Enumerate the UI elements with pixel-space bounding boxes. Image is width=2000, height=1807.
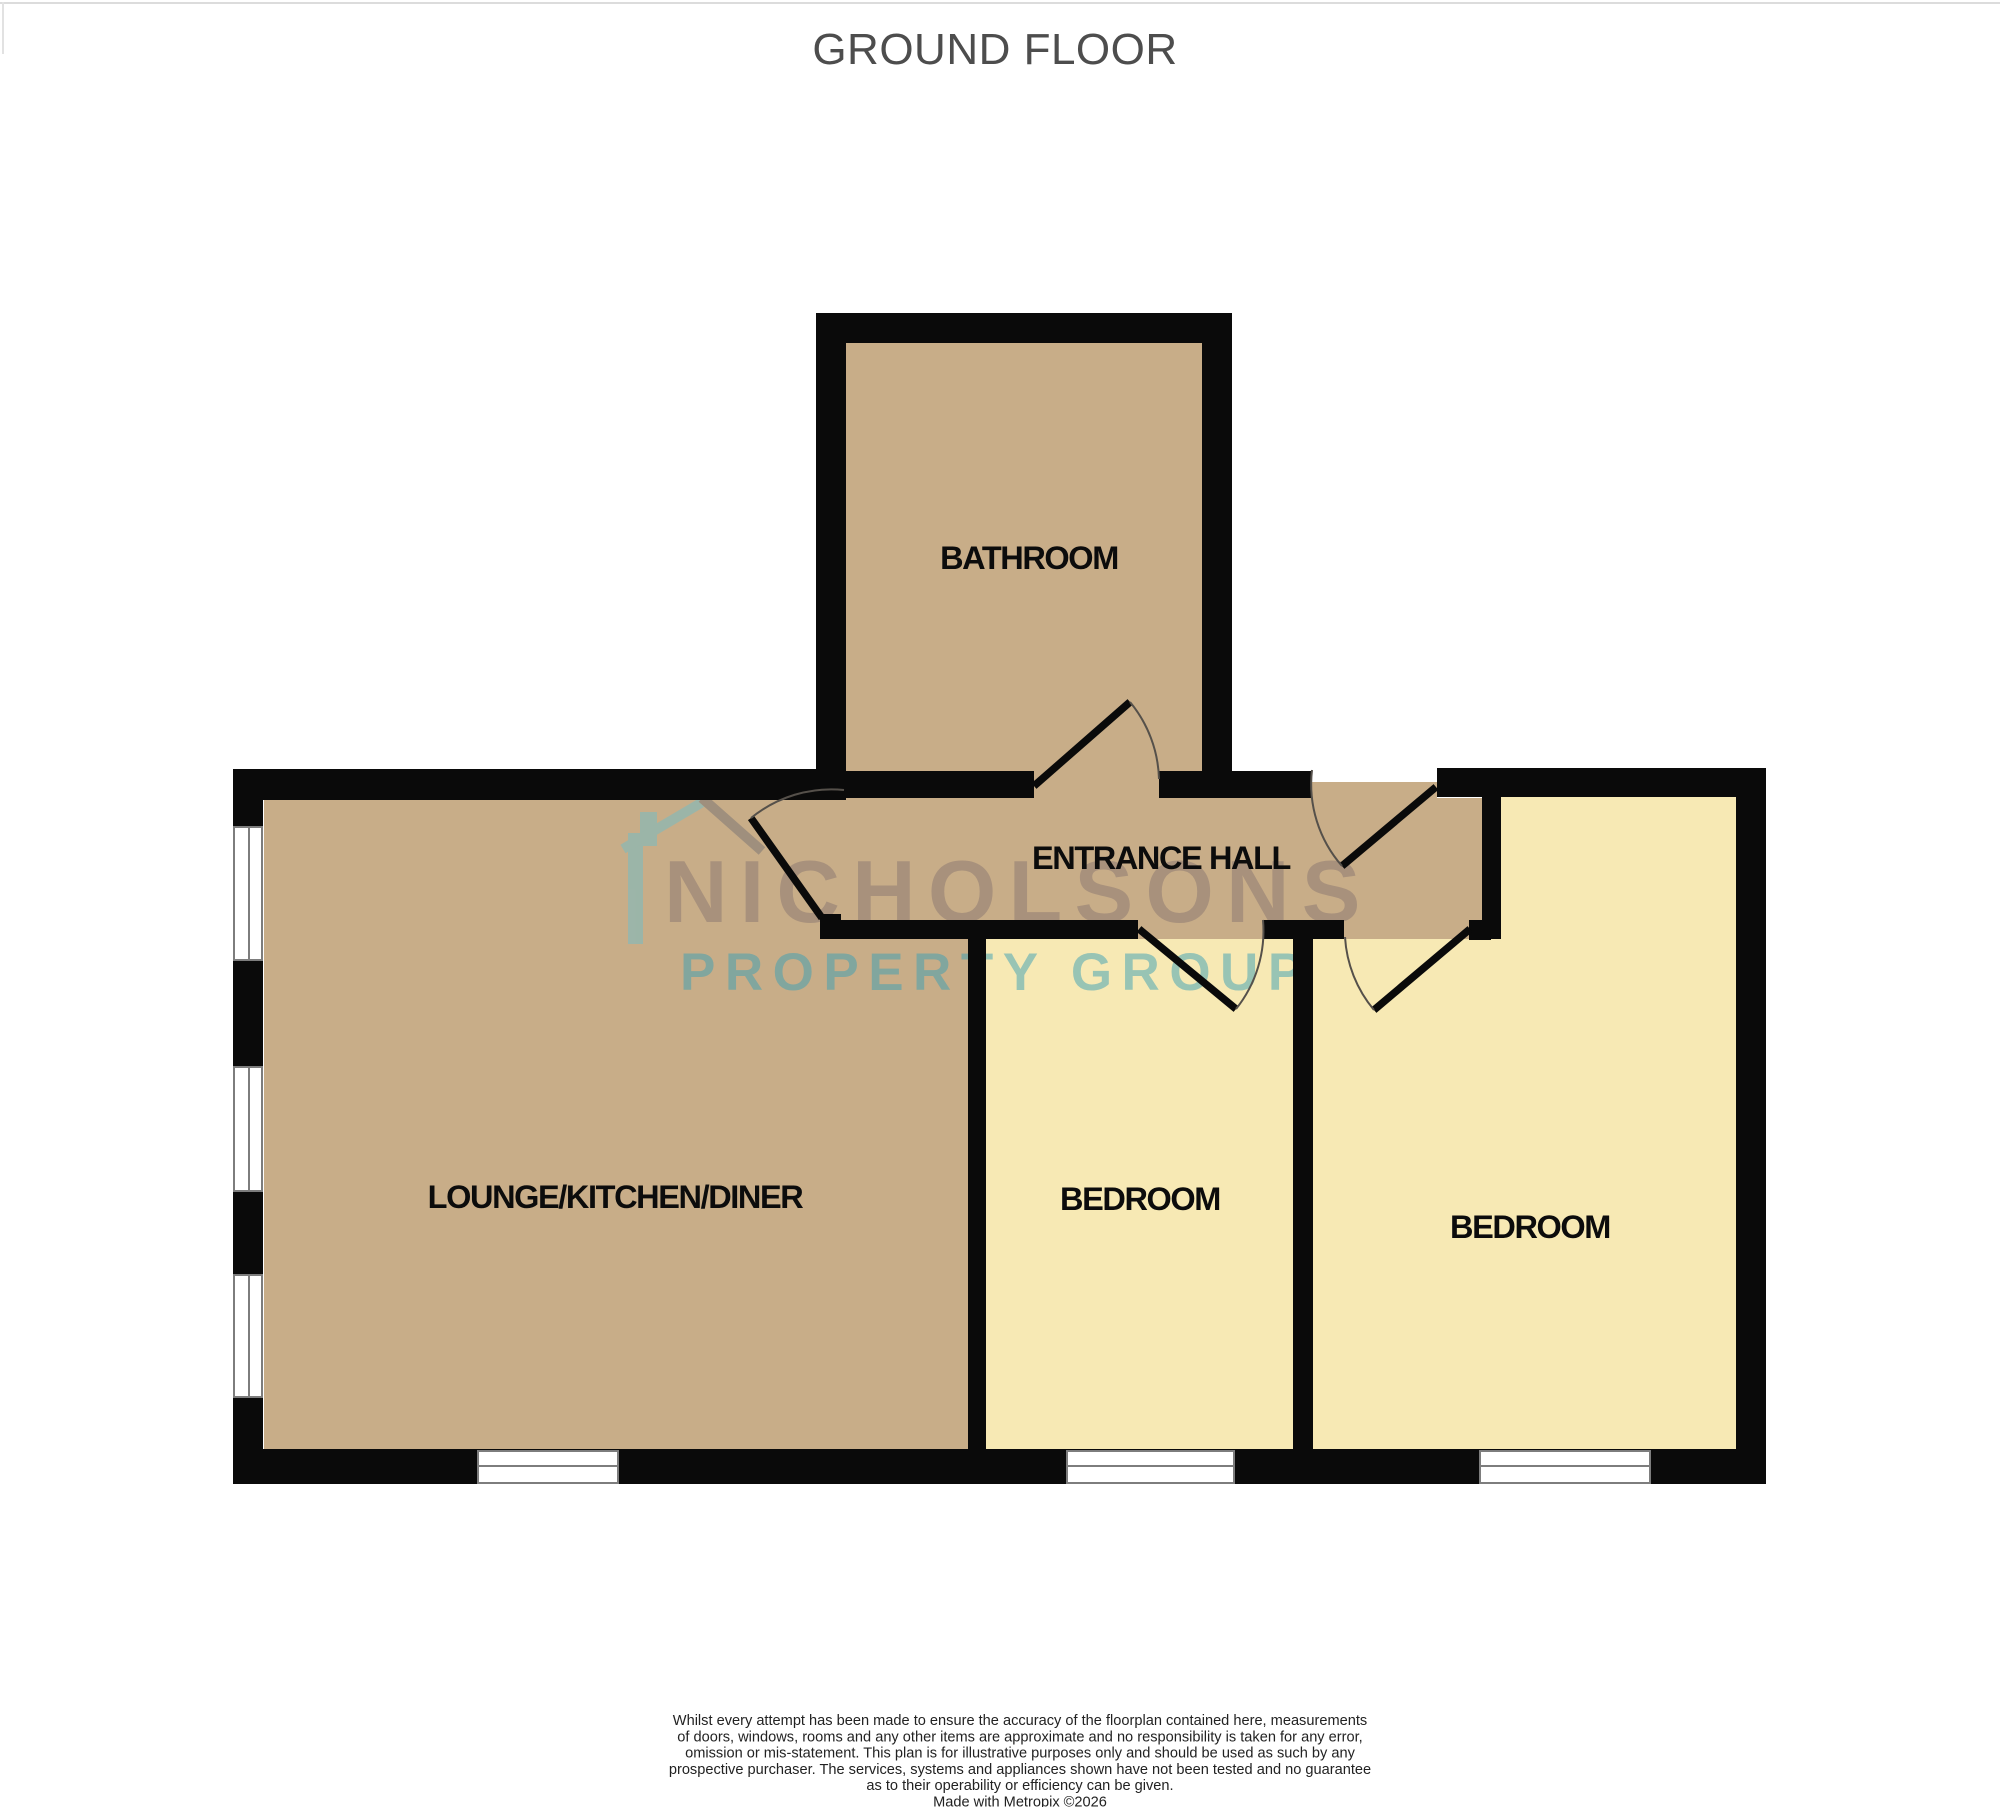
svg-text:Whilst every attempt has been: Whilst every attempt has been made to en…	[673, 1713, 1367, 1729]
svg-text:Made with Metropix ©2026: Made with Metropix ©2026	[933, 1795, 1107, 1807]
svg-text:omission or mis-statement. Thi: omission or mis-statement. This plan is …	[685, 1746, 1355, 1762]
svg-text:prospective purchaser. The ser: prospective purchaser. The services, sys…	[669, 1762, 1371, 1778]
svg-text:BATHROOM: BATHROOM	[940, 540, 1118, 576]
svg-text:ENTRANCE HALL: ENTRANCE HALL	[1032, 840, 1291, 876]
svg-text:of doors, windows, rooms and a: of doors, windows, rooms and any other i…	[677, 1729, 1362, 1745]
svg-text:BEDROOM: BEDROOM	[1060, 1181, 1220, 1217]
svg-text:LOUNGE/KITCHEN/DINER: LOUNGE/KITCHEN/DINER	[428, 1179, 804, 1215]
svg-text:GROUND FLOOR: GROUND FLOOR	[812, 25, 1177, 74]
svg-text:BEDROOM: BEDROOM	[1450, 1209, 1610, 1245]
svg-text:as to their operability or eff: as to their operability or efficiency ca…	[866, 1778, 1173, 1794]
